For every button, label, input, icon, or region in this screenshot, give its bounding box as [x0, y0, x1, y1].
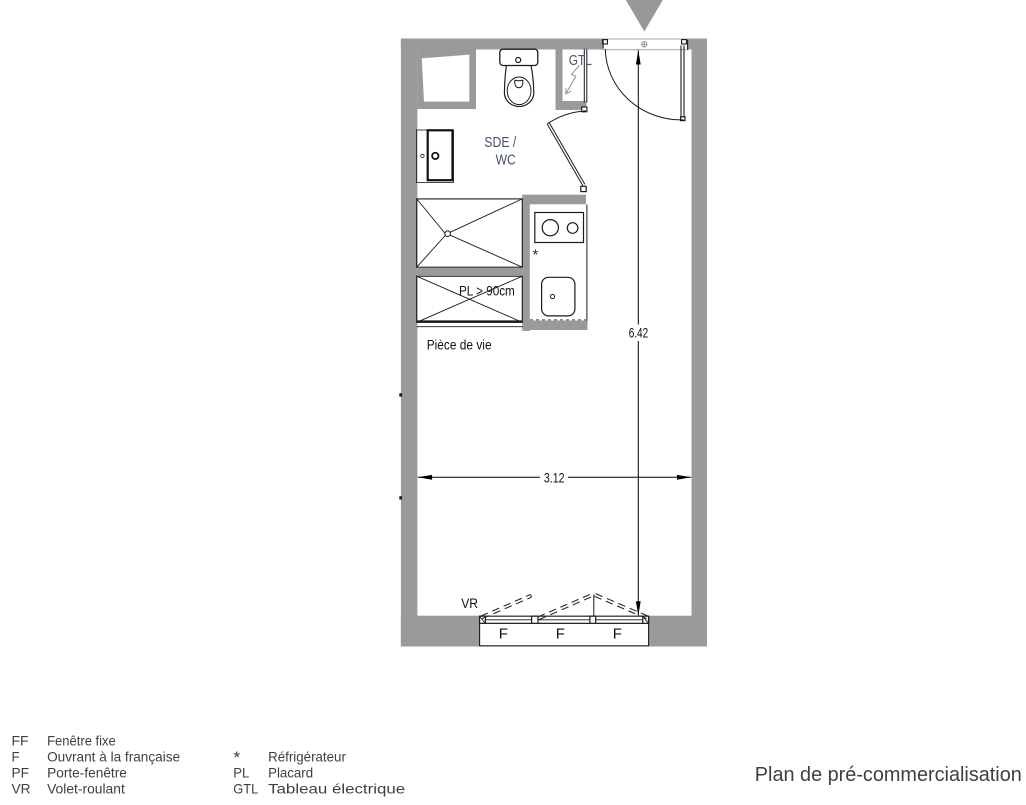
svg-text:PF: PF [12, 765, 30, 780]
svg-text:Tableau électrique: Tableau électrique [268, 781, 405, 796]
svg-text:F: F [499, 626, 508, 643]
svg-text:F: F [556, 626, 565, 643]
svg-text:PL: PL [233, 765, 249, 780]
svg-text:Fenêtre fixe: Fenêtre fixe [47, 733, 116, 748]
svg-text:Pièce de vie: Pièce de vie [427, 337, 492, 352]
svg-text:*: * [533, 247, 539, 264]
svg-text:GTL: GTL [569, 53, 592, 69]
svg-text:3.12: 3.12 [544, 470, 565, 485]
svg-text:FF: FF [12, 733, 29, 748]
svg-text:Placard: Placard [268, 765, 313, 780]
svg-text:Volet-roulant: Volet-roulant [47, 781, 125, 796]
svg-text:F: F [613, 626, 622, 643]
svg-text:Plan de pré-commercialisation: Plan de pré-commercialisation [755, 764, 1022, 786]
svg-text:SDE /: SDE / [484, 135, 517, 151]
svg-text:Ouvrant à la française: Ouvrant à la française [47, 749, 180, 764]
svg-text:Porte-fenêtre: Porte-fenêtre [47, 765, 127, 780]
svg-text:WC: WC [496, 153, 516, 169]
svg-text:GTL: GTL [233, 781, 258, 796]
svg-text:Réfrigérateur: Réfrigérateur [268, 749, 346, 764]
svg-text:VR: VR [461, 595, 478, 611]
svg-text:*: * [233, 748, 240, 767]
svg-text:PL > 90cm: PL > 90cm [459, 282, 515, 298]
svg-text:F: F [12, 749, 20, 764]
svg-text:6.42: 6.42 [629, 326, 649, 341]
svg-text:VR: VR [12, 781, 31, 796]
